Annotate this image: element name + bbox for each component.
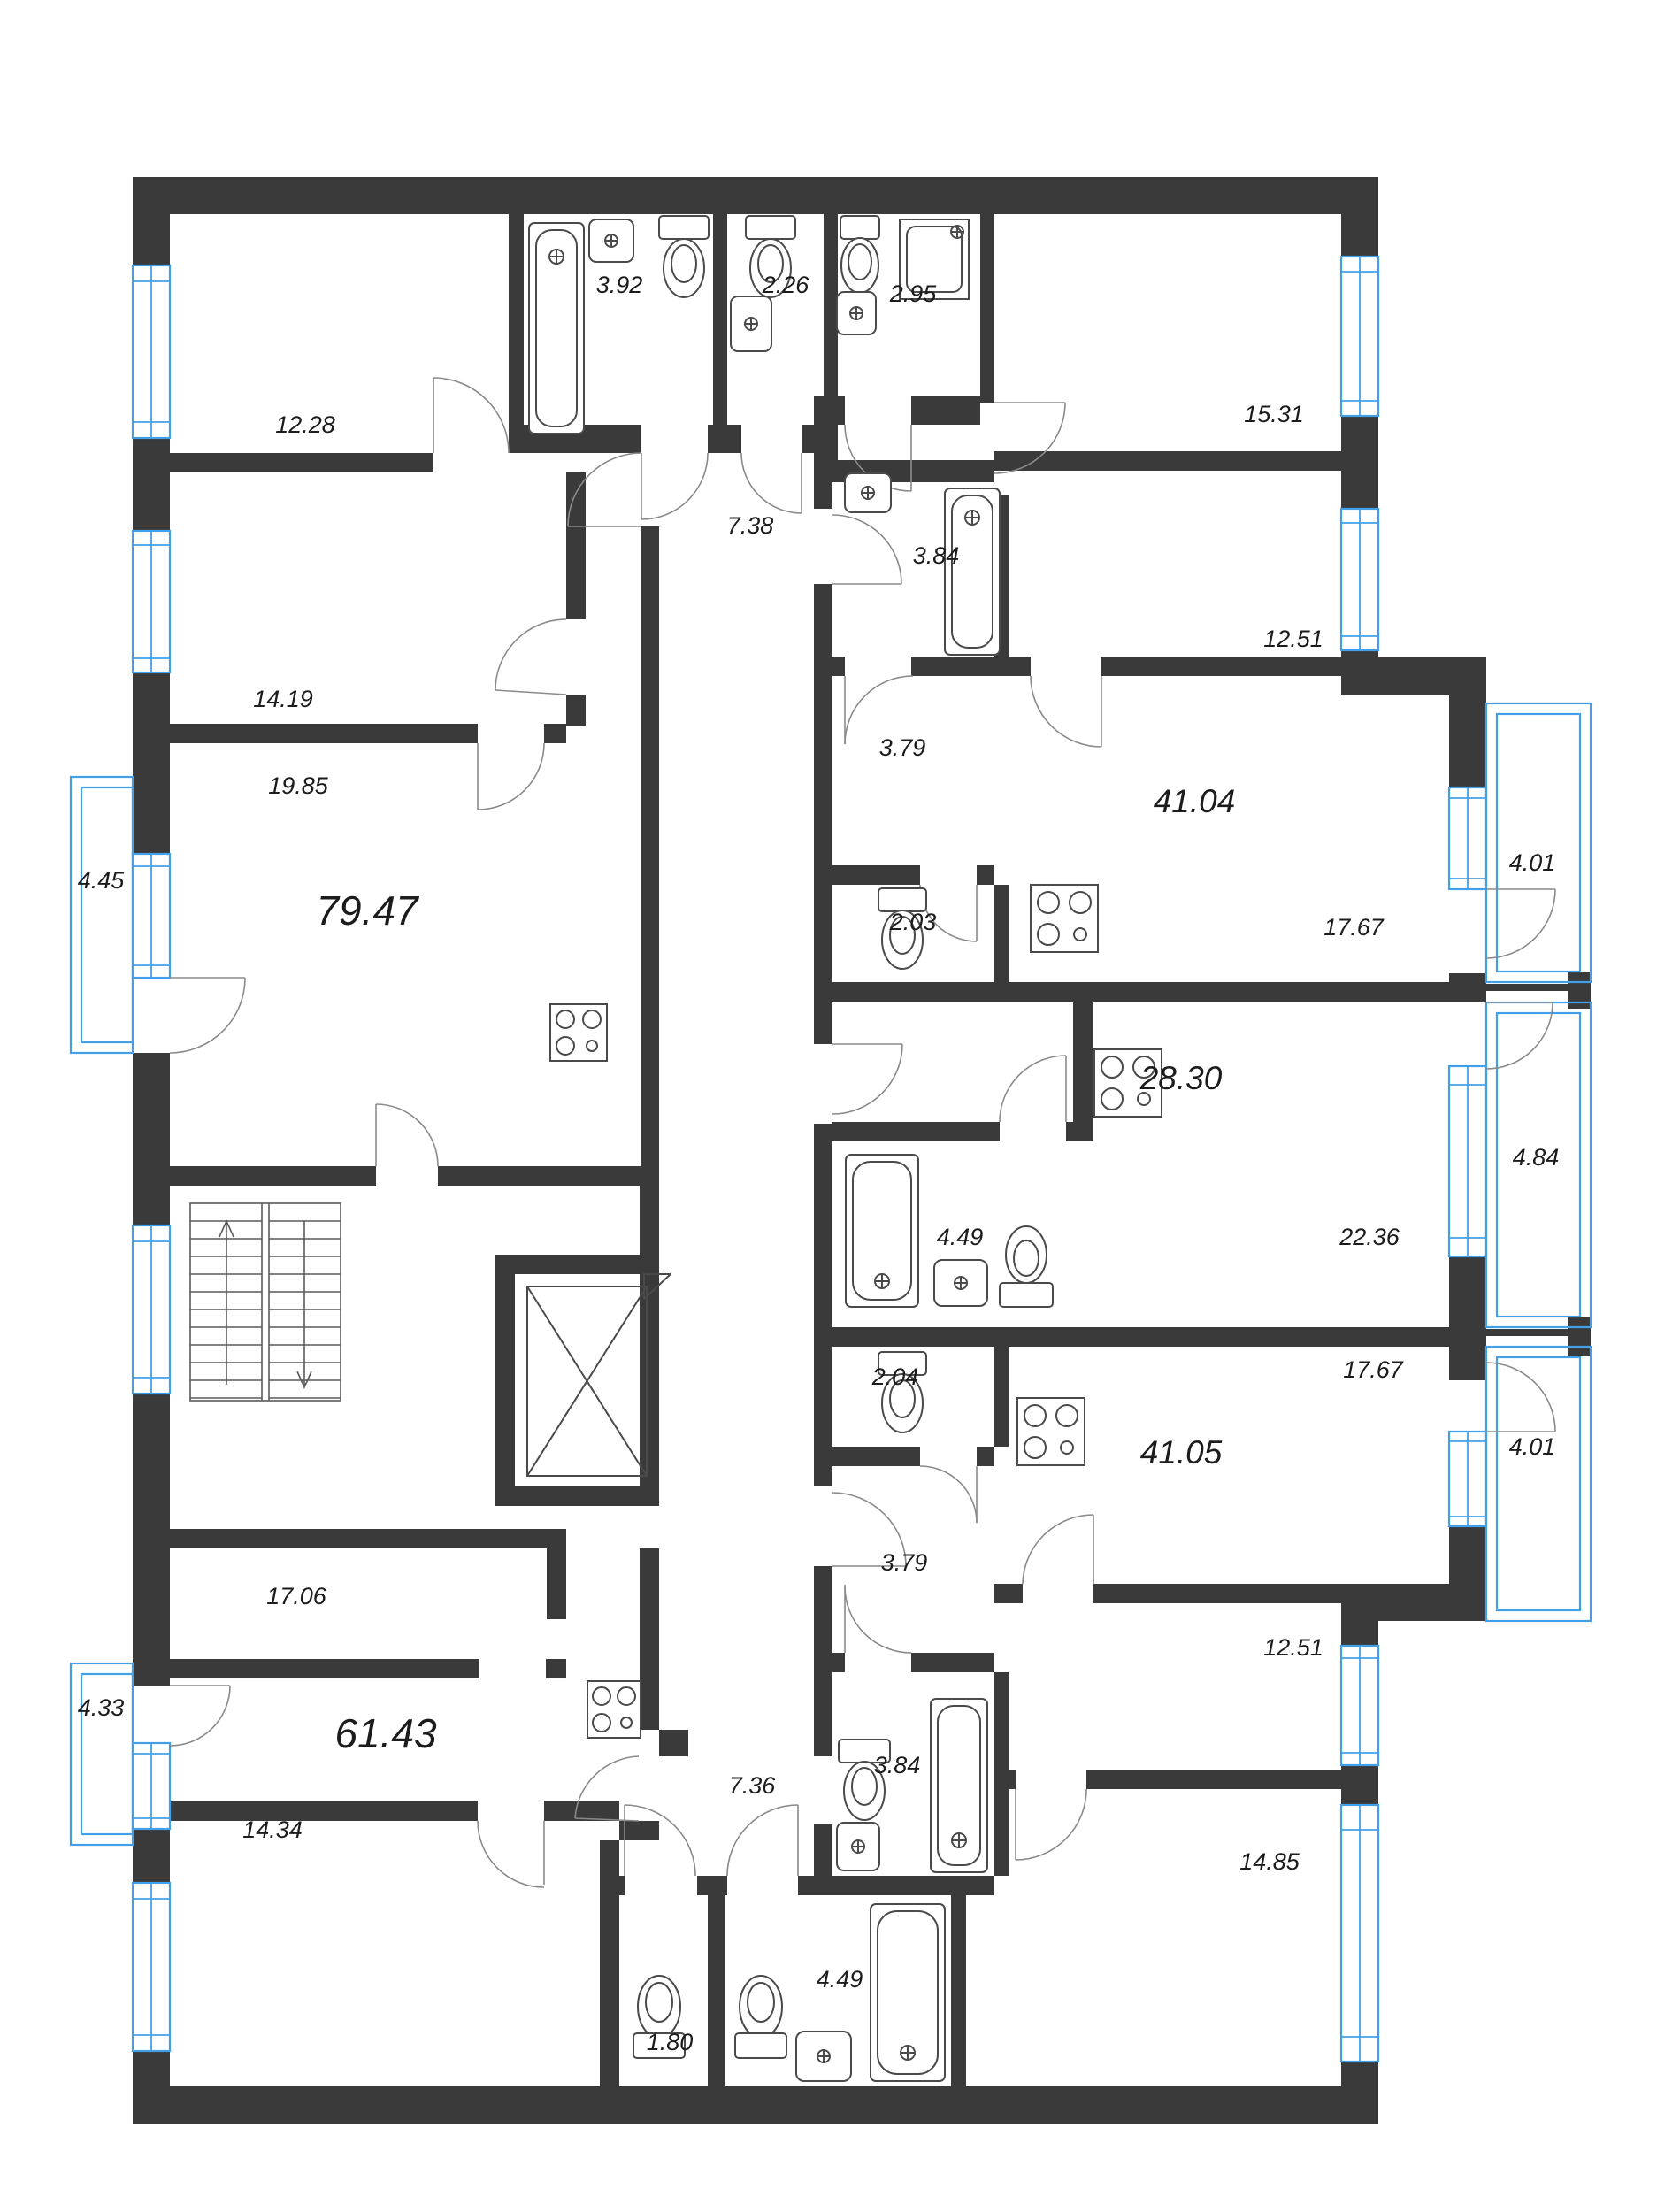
area-label-3-84-bot: 3.84 (874, 1752, 921, 1778)
area-label-4-01-top: 4.01 (1509, 849, 1556, 876)
window-icon (1341, 1805, 1378, 2062)
window-icon (1341, 257, 1378, 416)
area-label-7-38: 7.38 (727, 512, 774, 539)
area-label-14-34: 14.34 (242, 1816, 303, 1843)
area-label-2-04: 2.04 (871, 1363, 919, 1390)
area-label-41-04: 41.04 (1154, 783, 1236, 819)
stove-icon (587, 1681, 641, 1738)
window-icon (1449, 1432, 1486, 1526)
area-label-3-79-bot: 3.79 (881, 1549, 928, 1576)
area-label-2-26: 2.26 (762, 272, 810, 298)
area-label-79-47: 79.47 (316, 887, 419, 933)
balcony-4-01-bot-outline (1486, 1347, 1591, 1621)
area-label-28-30: 28.30 (1139, 1060, 1223, 1096)
area-label-17-06: 17.06 (266, 1583, 327, 1609)
area-label-4-84: 4.84 (1513, 1144, 1560, 1171)
balcony-4-33-outline (71, 1663, 133, 1845)
sink-icon (837, 1823, 879, 1870)
stove-icon (1017, 1398, 1085, 1465)
windows (133, 257, 1486, 2062)
area-label-4-49-bot: 4.49 (817, 1966, 863, 1993)
toilet-icon (735, 1976, 786, 2058)
toilet-icon (840, 216, 879, 293)
sink-icon (731, 296, 771, 351)
area-label-15-31: 15.31 (1244, 401, 1304, 427)
area-label-19-85: 19.85 (268, 772, 329, 799)
window-icon (133, 854, 170, 978)
area-label-12-28: 12.28 (275, 411, 335, 438)
area-label-14-19: 14.19 (253, 686, 313, 712)
bathtub-icon (529, 223, 584, 434)
floor-plan-drawing: 12.28 3.92 2.26 2.95 15.31 7.38 3.84 12.… (0, 0, 1680, 2212)
area-label-17-67-top: 17.67 (1323, 914, 1385, 941)
sink-icon (845, 473, 891, 512)
area-label-1-80: 1.80 (647, 2029, 694, 2055)
floor-plan-page: 12.28 3.92 2.26 2.95 15.31 7.38 3.84 12.… (0, 0, 1680, 2212)
area-label-2-95: 2.95 (889, 280, 938, 307)
area-label-22-36: 22.36 (1339, 1224, 1400, 1250)
area-label-3-92: 3.92 (596, 272, 643, 298)
window-icon (1449, 1066, 1486, 1256)
elevator-x-icon (527, 1286, 647, 1476)
window-icon (133, 1225, 170, 1394)
window-icon (133, 531, 170, 672)
bathtub-icon (931, 1699, 987, 1872)
bathtub-icon (846, 1155, 918, 1307)
interior-walls (170, 214, 1341, 2086)
window-icon (133, 1883, 170, 2051)
toilet-icon (1000, 1226, 1053, 1307)
balcony-4-01-top-outline (1486, 703, 1591, 982)
area-label-4-45: 4.45 (78, 867, 126, 894)
toilet-icon (659, 216, 709, 297)
area-label-12-51-top: 12.51 (1263, 626, 1323, 652)
staircase (190, 1203, 341, 1401)
stairs-up-arrow-icon (219, 1221, 234, 1385)
sink-icon (837, 292, 876, 334)
bathtub-icon (871, 1904, 945, 2081)
area-label-41-05: 41.05 (1140, 1434, 1223, 1471)
area-label-4-01-bot: 4.01 (1509, 1433, 1556, 1460)
fixtures (529, 216, 1162, 2081)
area-label-14-85: 14.85 (1239, 1848, 1300, 1875)
area-label-3-79-top: 3.79 (879, 734, 926, 761)
area-label-4-49-mid: 4.49 (937, 1224, 984, 1250)
bathtub-icon (945, 488, 1000, 655)
balcony-4-45-outline (71, 777, 133, 1053)
area-label-2-03: 2.03 (889, 909, 937, 935)
area-label-3-84-top: 3.84 (913, 542, 960, 569)
area-label-61-43: 61.43 (334, 1710, 437, 1756)
area-label-7-36: 7.36 (729, 1772, 777, 1799)
sink-icon (934, 1260, 987, 1306)
area-label-17-67-bot: 17.67 (1343, 1356, 1404, 1383)
area-label-4-33: 4.33 (78, 1694, 125, 1721)
window-icon (133, 1743, 170, 1829)
sink-icon (589, 219, 633, 262)
window-icon (133, 265, 170, 438)
area-label-12-51-bot: 12.51 (1263, 1634, 1323, 1661)
window-icon (1449, 787, 1486, 889)
window-icon (1341, 1646, 1378, 1765)
sink-icon (796, 2032, 851, 2081)
window-icon (1341, 509, 1378, 650)
elevator (527, 1286, 647, 1476)
stove-icon (550, 1004, 607, 1061)
stove-icon (1031, 885, 1098, 952)
